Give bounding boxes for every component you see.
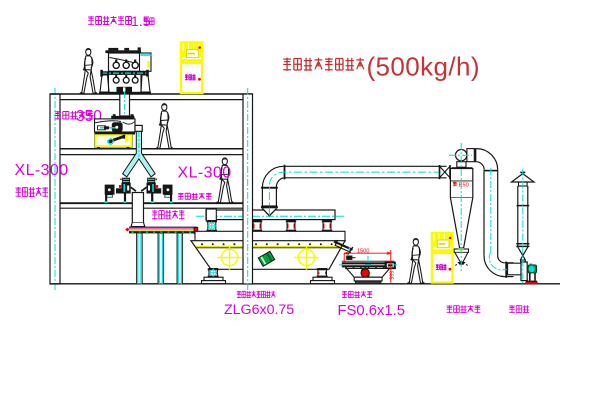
svg-text:XL-300: XL-300 bbox=[15, 162, 69, 179]
svg-text:FS0.6x1.5: FS0.6x1.5 bbox=[338, 303, 405, 319]
svg-text:XL-300: XL-300 bbox=[178, 165, 232, 182]
svg-text:E50: E50 bbox=[459, 182, 469, 188]
svg-text:ZLG6x0.75: ZLG6x0.75 bbox=[224, 302, 294, 318]
svg-text:565: 565 bbox=[388, 271, 394, 280]
svg-text:(500kg/h): (500kg/h) bbox=[367, 52, 480, 82]
svg-text:1500: 1500 bbox=[357, 248, 369, 254]
